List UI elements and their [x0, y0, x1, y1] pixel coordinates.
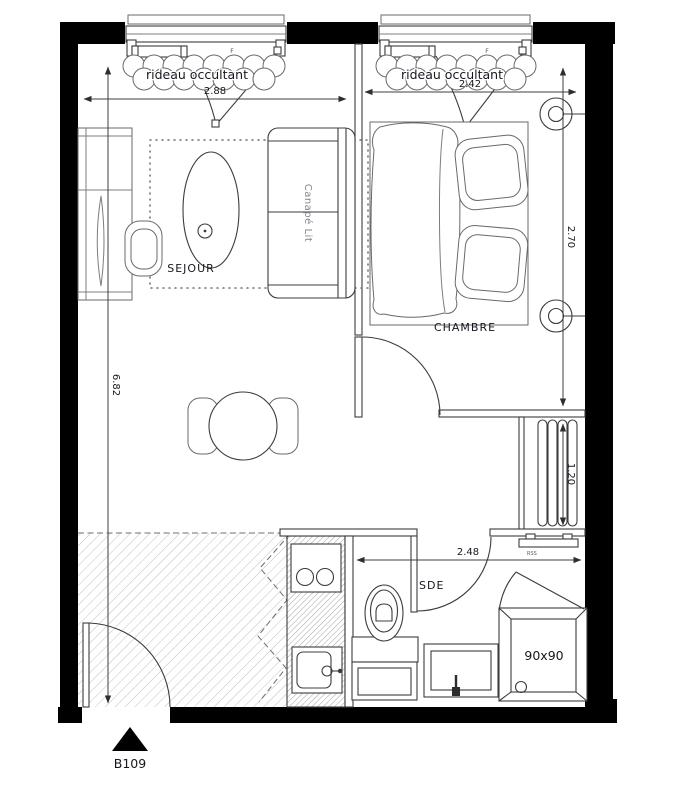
- shower-door: [499, 572, 584, 611]
- sofa-bed-label: Canapé Lit: [302, 184, 314, 243]
- entry-zone: [78, 533, 290, 707]
- unit-label: B109: [114, 756, 146, 771]
- dim-value: 2.42: [459, 79, 481, 90]
- coffee-table: [183, 152, 239, 268]
- towel-shelf: RSS: [519, 534, 578, 557]
- dim-value: 2.88: [204, 86, 226, 97]
- desk: [78, 128, 132, 300]
- dim-value: 2.48: [457, 547, 479, 558]
- shower-tray: 90x90: [499, 608, 587, 701]
- shower-size-label: 90x90: [524, 648, 563, 663]
- entrance-marker: B109: [112, 727, 148, 771]
- desk-chair: [125, 221, 162, 276]
- curtain-left-label: rideau occultant: [146, 67, 248, 82]
- shelf-label: RSS: [527, 551, 537, 557]
- window-left-tag: F: [230, 48, 234, 55]
- dining-table: [188, 392, 298, 460]
- kitchenette: [287, 536, 345, 707]
- duvet: [371, 123, 460, 317]
- bedroom-door: [355, 337, 440, 417]
- room-label-chambre: CHAMBRE: [434, 321, 496, 334]
- floor-plan: rideau occultant F rideau occultant F: [0, 0, 695, 800]
- sofa-bed: Canapé Lit: [268, 128, 355, 298]
- kitchen-sink: [292, 647, 342, 693]
- dim-value: 6.82: [110, 374, 121, 396]
- dimension-sde-width: 2.48: [357, 547, 581, 560]
- dim-value: 2.70: [565, 226, 576, 248]
- vanity-cabinet: [352, 662, 417, 700]
- hob-panel: [291, 544, 341, 592]
- floor-plan-page: rideau occultant F rideau occultant F: [0, 0, 695, 800]
- dimension-window-left: 2.88: [84, 86, 346, 99]
- room-label-sejour: SEJOUR: [167, 262, 215, 275]
- window-right-tag: F: [485, 48, 489, 55]
- bed: [370, 98, 585, 332]
- curtain-right-label: rideau occultant: [401, 67, 503, 82]
- dim-value: 1.20: [565, 463, 576, 485]
- washbasin: [424, 644, 498, 697]
- toilet: [352, 585, 418, 662]
- dimension-chambre-depth: 2.70: [563, 68, 576, 406]
- room-label-sde: SDE: [419, 579, 444, 592]
